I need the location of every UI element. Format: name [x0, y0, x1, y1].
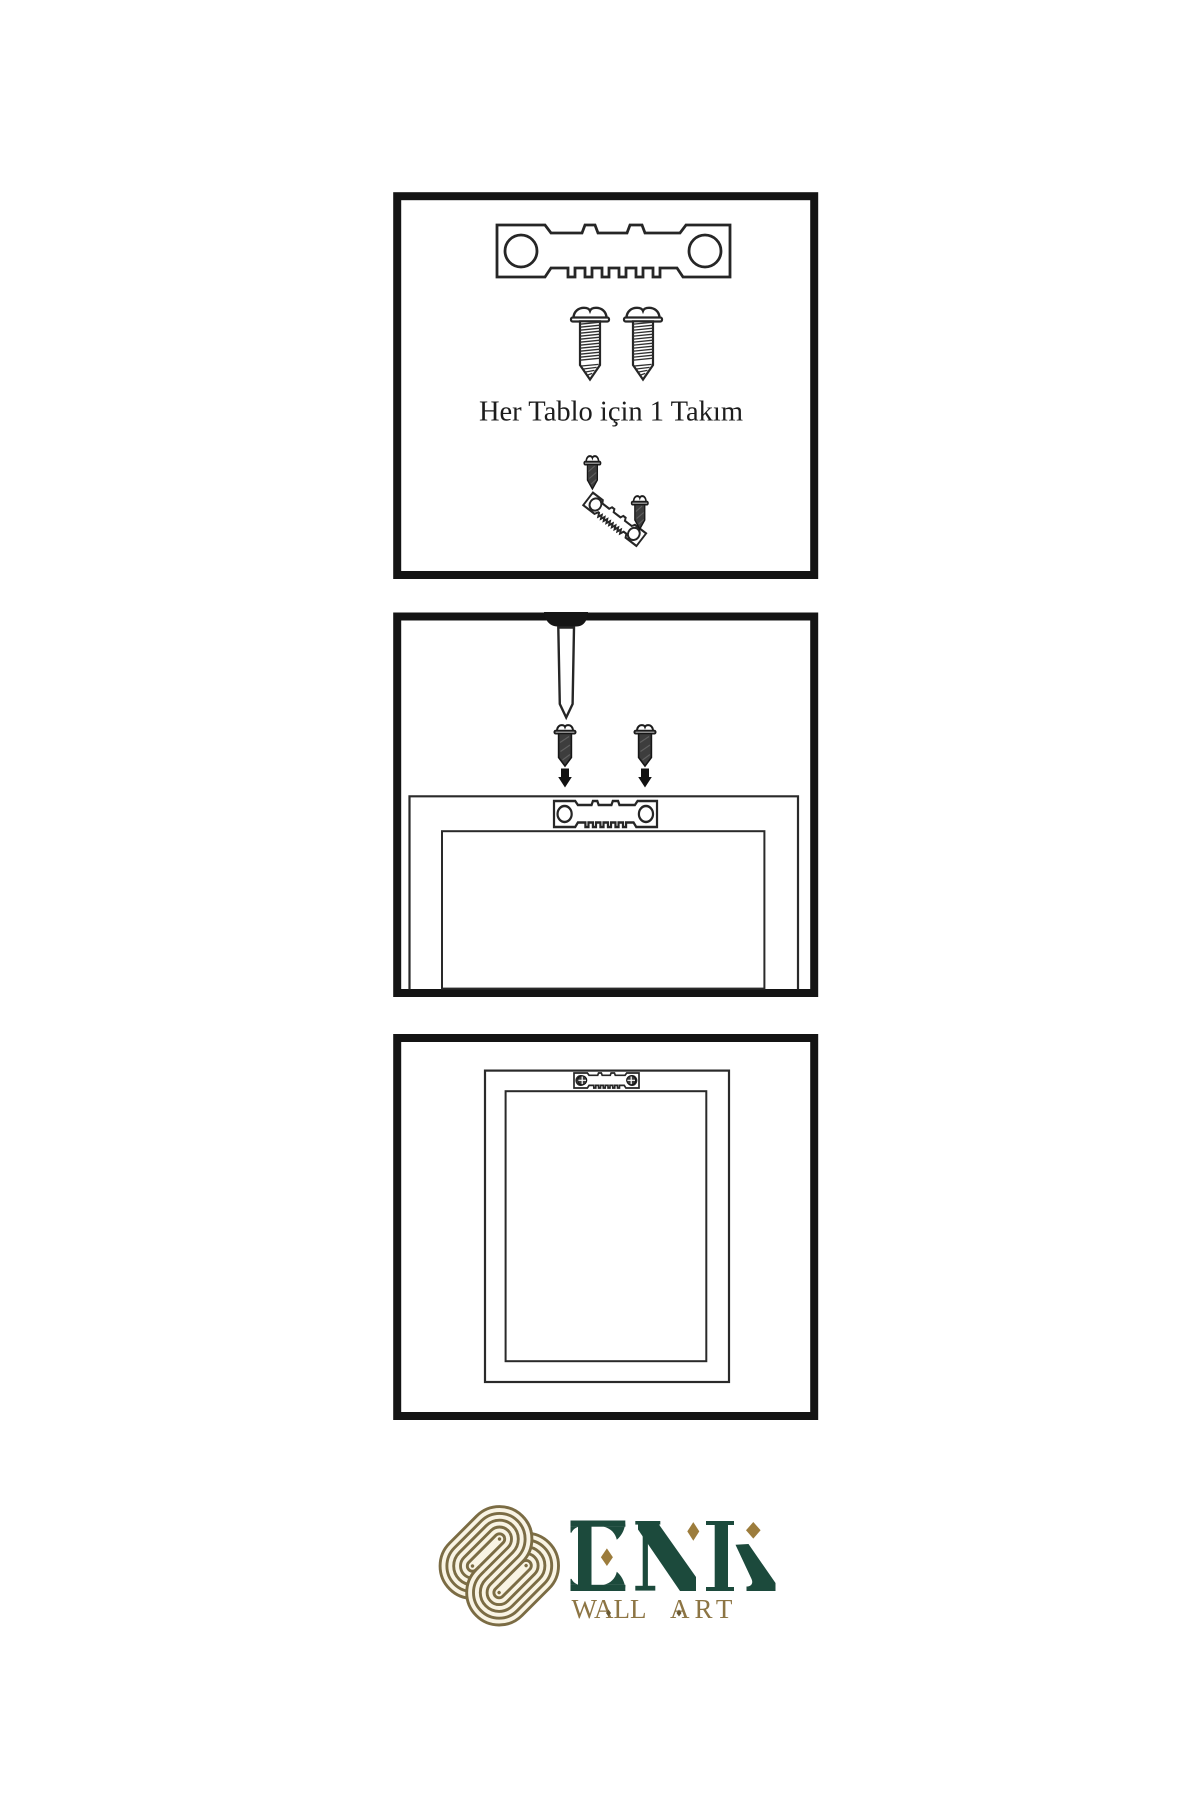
svg-text:ART: ART — [670, 1594, 737, 1624]
svg-text:WALL: WALL — [572, 1594, 647, 1624]
svg-text:Her Tablo için 1 Takım: Her Tablo için 1 Takım — [479, 397, 743, 428]
